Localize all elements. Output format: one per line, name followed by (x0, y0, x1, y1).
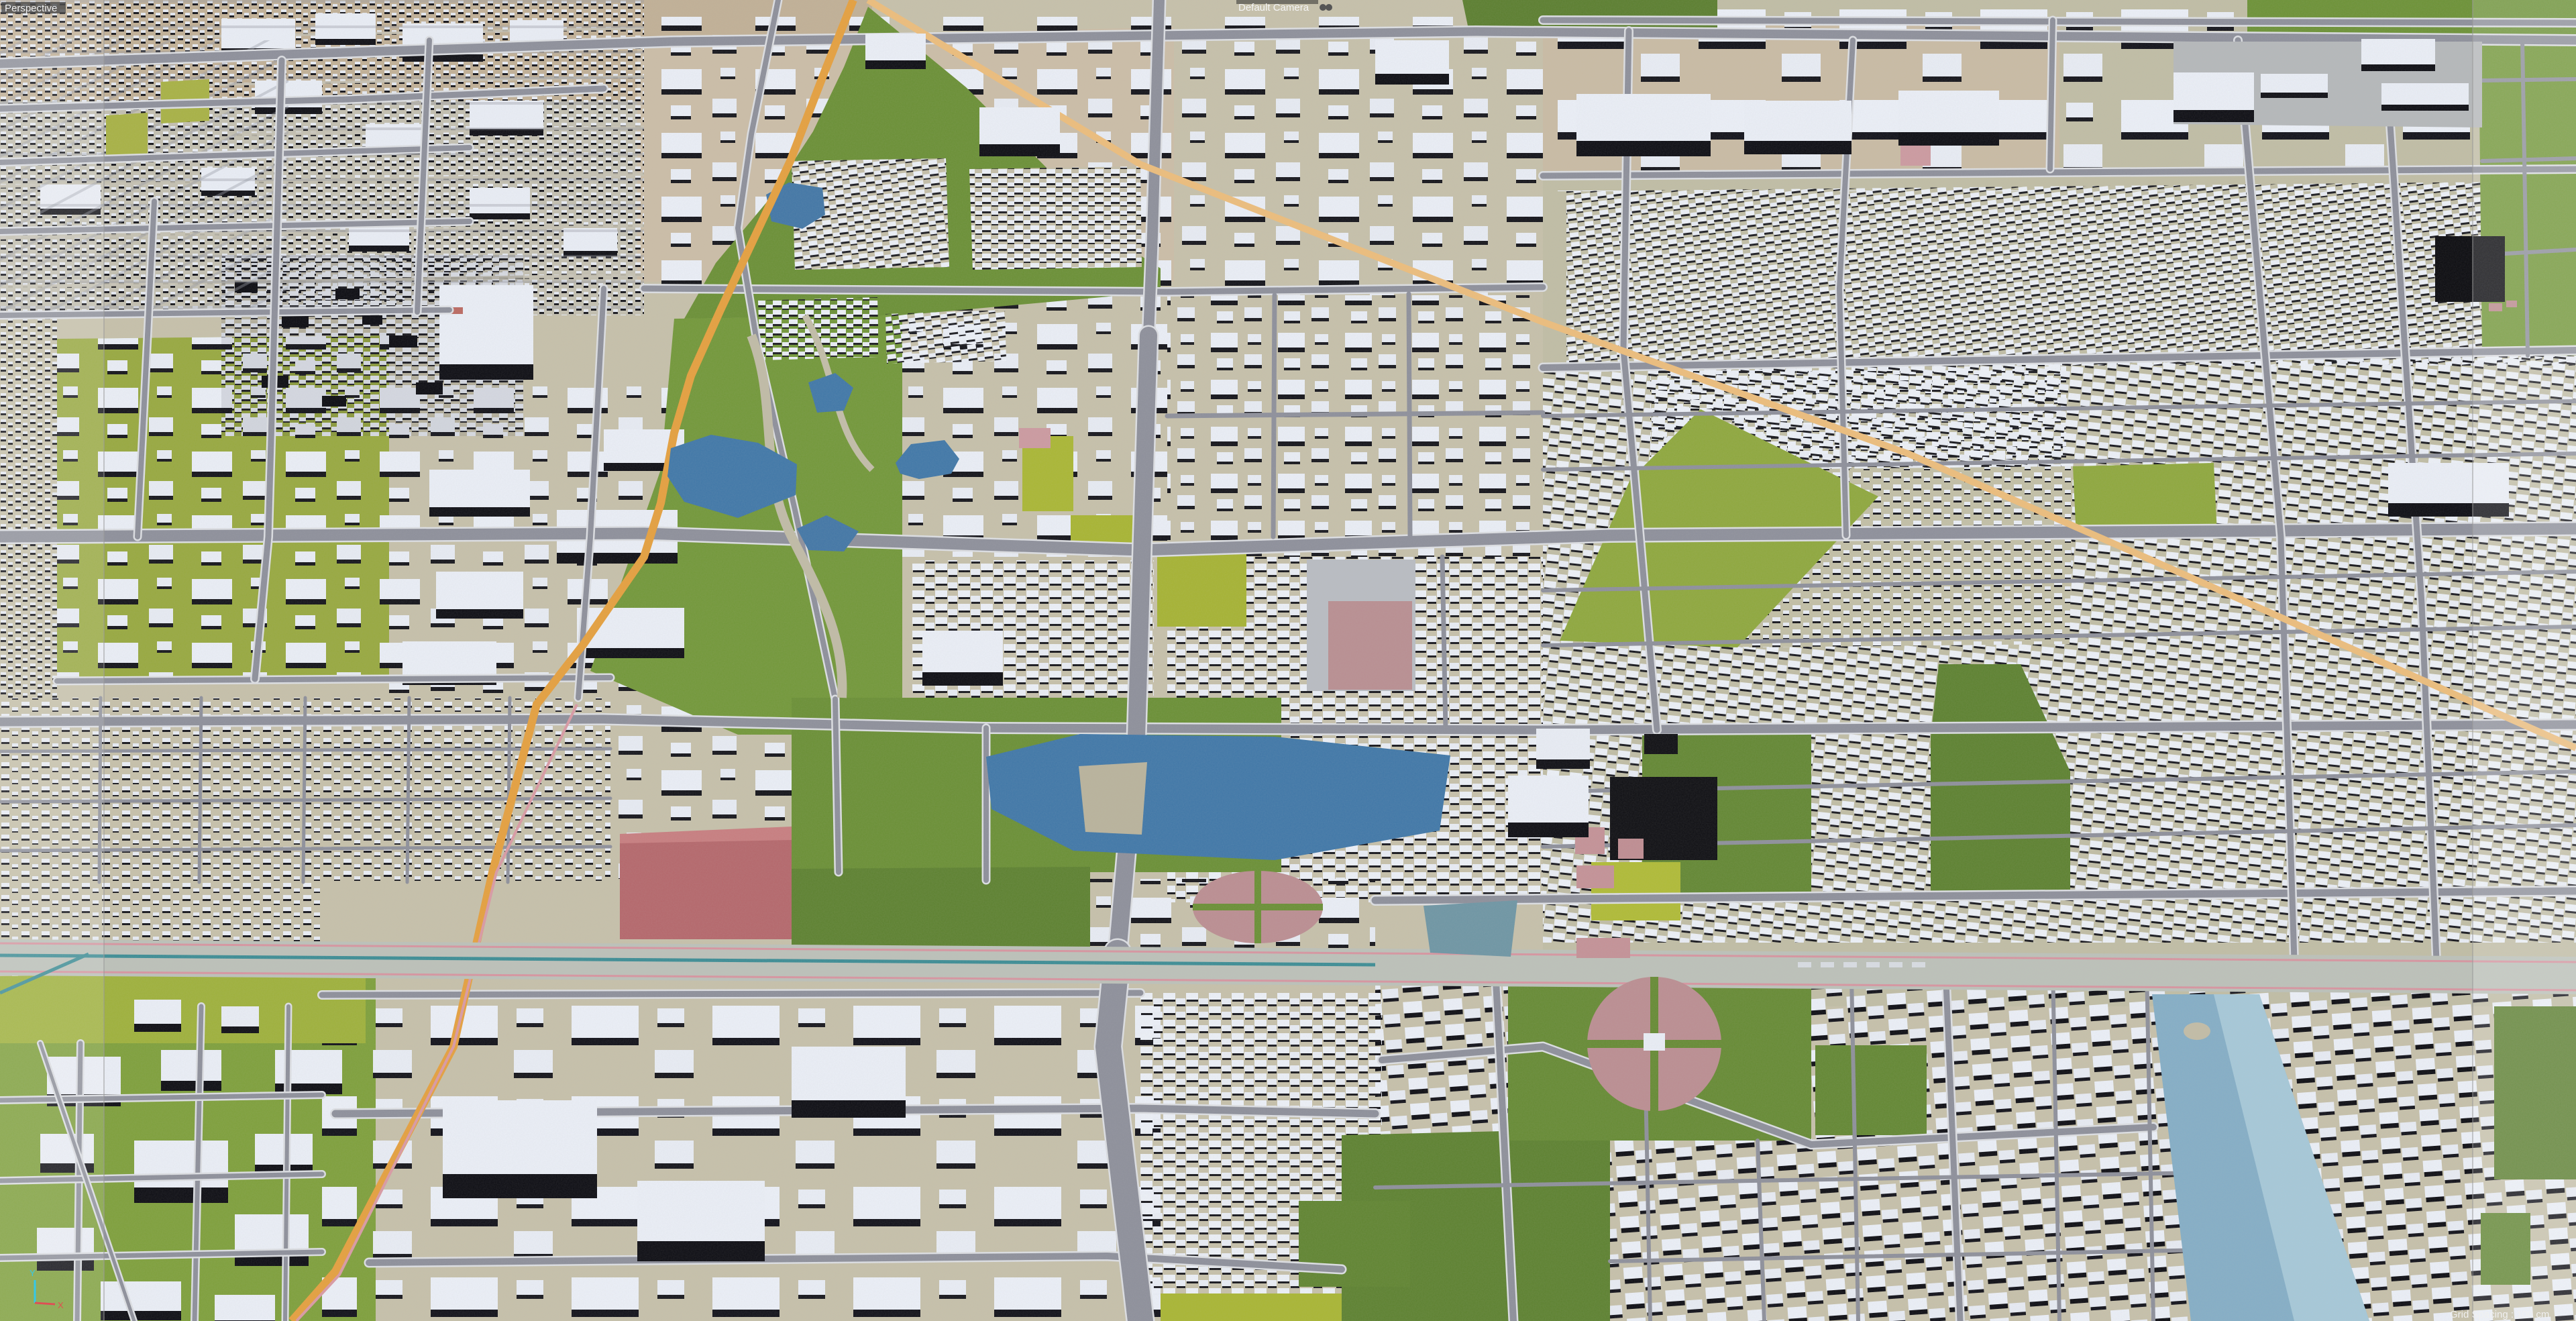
svg-text:Grid Spacing : 100 cm: Grid Spacing : 100 cm (2450, 1309, 2549, 1320)
svg-text:Default Camera: Default Camera (1238, 2, 1309, 13)
svg-text:X: X (58, 1300, 64, 1310)
svg-text:Y: Y (30, 1268, 36, 1278)
svg-text:Perspective: Perspective (5, 3, 57, 14)
